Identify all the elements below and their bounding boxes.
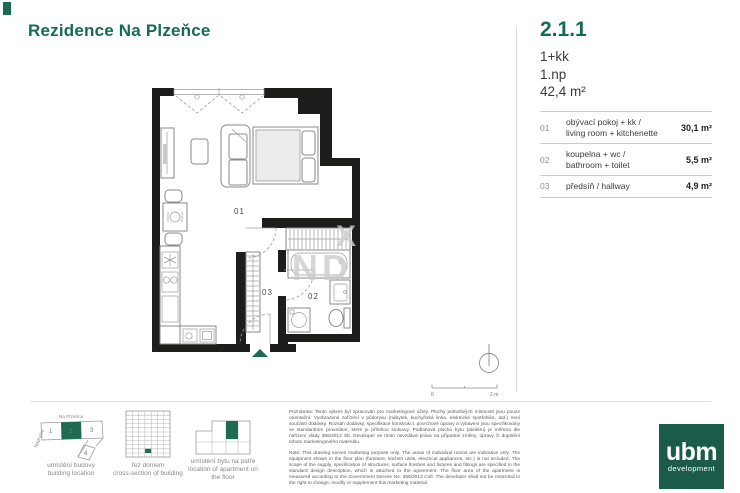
legend-floor-plate — [192, 417, 254, 457]
disclaimer-note: Poznámka: Tento výkres byl zpracován pro… — [289, 410, 520, 492]
logo-name: ubm — [666, 441, 717, 463]
unit-area: 42,4 m² — [540, 83, 586, 101]
wardrobe-hallway — [246, 252, 260, 332]
toilet — [329, 308, 350, 328]
compass-icon — [480, 344, 499, 373]
legend-site-plan: Na Plzeňce Nádražní 1 2 3 4 — [33, 412, 109, 464]
room-name: předsíň / hallway — [566, 181, 686, 192]
table-row: 01 obývací pokoj + kk / living room + ki… — [540, 111, 712, 143]
sofa — [221, 125, 250, 187]
building-number-1: 1 — [49, 429, 53, 435]
room-name-cs: koupelna + wc / — [566, 149, 686, 160]
room-table: 01 obývací pokoj + kk / living room + ki… — [540, 111, 712, 198]
scale-bar: 0 2 m — [431, 385, 498, 399]
table-row: 03 předsíň / hallway 4,9 m² — [540, 175, 712, 198]
kitchen — [160, 246, 216, 344]
washing-machine — [288, 308, 310, 332]
room-area: 4,9 m² — [686, 181, 712, 191]
room-name-cs: obývací pokoj + kk / — [566, 117, 681, 128]
highlighted-apartment — [226, 421, 238, 439]
building-number-3: 3 — [90, 428, 94, 434]
room-number: 01 — [540, 123, 566, 133]
room-label-bathroom: 02 — [308, 292, 319, 301]
tv-sideboard — [161, 128, 174, 178]
unit-id: 2.1.1 — [540, 18, 587, 42]
bed — [253, 127, 318, 184]
note-english: Note: This drawing serves marketing purp… — [289, 451, 520, 487]
window — [174, 88, 264, 113]
watermark-fragment-2: ND — [292, 247, 352, 288]
street-label-left: Nádražní — [33, 428, 46, 449]
door-living-hallway — [246, 228, 276, 258]
note-czech: Poznámka: Tento výkres byl zpracován pro… — [289, 410, 520, 446]
scale-max-label: 2 m — [490, 392, 498, 398]
unit-floor: 1.np — [540, 66, 586, 84]
coffee-table — [191, 139, 208, 164]
room-name-en: living room + kitchenette — [566, 128, 681, 139]
building-number-4: 4 — [84, 451, 88, 457]
room-area: 5,5 m² — [686, 155, 712, 165]
room-label-living: 01 — [234, 207, 245, 216]
table-row: 02 koupelna + wc / bathroom + toilet 5,5… — [540, 143, 712, 175]
unit-layout: 1+kk — [540, 48, 586, 66]
room-name-en: bathroom + toilet — [566, 160, 686, 171]
legend-cross-section — [118, 409, 178, 461]
unit-specs: 1+kk 1.np 42,4 m² — [540, 48, 586, 101]
room-name: obývací pokoj + kk / living room + kitch… — [566, 117, 681, 138]
highlighted-floor-cell — [145, 449, 151, 453]
room-number: 02 — [540, 155, 566, 165]
ubm-logo: ubm development — [659, 424, 724, 489]
caption-apartment-location: umístění bytu na patře location of apart… — [183, 458, 263, 482]
page-title: Rezidence Na Plzeňce — [28, 21, 211, 41]
room-number: 03 — [540, 181, 566, 191]
room-name: koupelna + wc / bathroom + toilet — [566, 149, 686, 170]
room-area: 30,1 m² — [681, 123, 712, 133]
room-name-cs: předsíň / hallway — [566, 181, 686, 192]
caption-cs: umístění bytu na patře — [183, 458, 263, 466]
scale-zero-label: 0 — [431, 392, 434, 398]
floor-plan: 01 02 03 X ND 0 2 m — [130, 80, 530, 405]
logo-tagline: development — [668, 464, 715, 473]
corner-accent — [3, 2, 11, 15]
street-label-top: Na Plzeňce — [59, 414, 84, 420]
room-label-hallway: 03 — [262, 288, 273, 297]
caption-en: location of apartment on the floor — [183, 466, 263, 482]
walls — [152, 88, 360, 352]
entrance-marker — [252, 349, 268, 357]
dining-set — [163, 190, 187, 245]
